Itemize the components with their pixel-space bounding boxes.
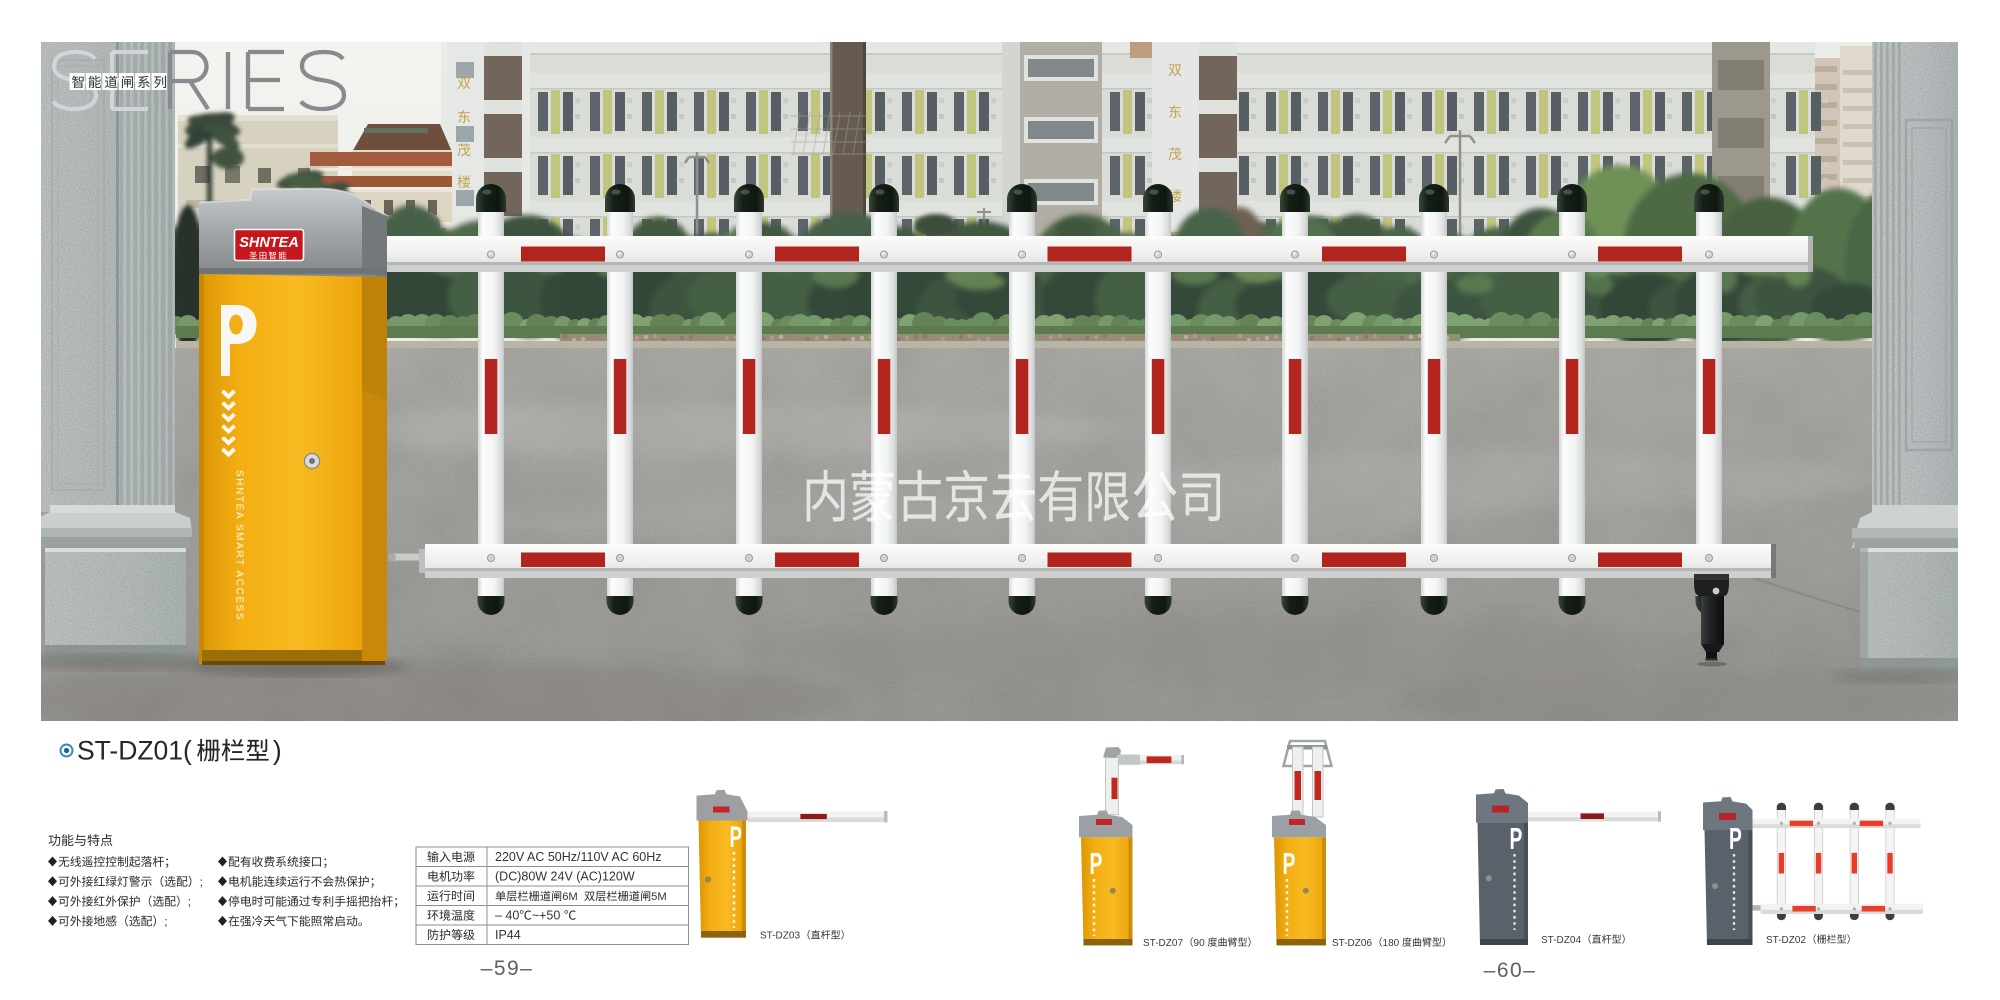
svg-text:;: ; [164,914,167,928]
svg-text:–60–: –60– [1484,959,1537,982]
svg-text:(DC)80W 24V (AC)120W: (DC)80W 24V (AC)120W [495,870,635,884]
svg-text:SHNTEA SMART ACCESS: SHNTEA SMART ACCESS [234,470,245,621]
svg-text:P: P [1510,823,1523,857]
svg-text:ST-DZ06: ST-DZ06 [1332,938,1372,949]
svg-text:ST-DZ07: ST-DZ07 [1143,938,1183,949]
svg-text:– 40: – 40 [495,909,519,923]
svg-text:90: 90 [1194,938,1206,949]
svg-text:;: ; [188,895,191,909]
svg-text:;: ; [200,875,203,889]
svg-text:): ) [273,736,282,766]
svg-text:P: P [730,821,742,855]
svg-text:~+50: ~+50 [532,909,561,923]
svg-text:180: 180 [1383,938,1400,949]
svg-text:P: P [1729,823,1742,857]
svg-text:–59–: –59– [481,957,534,980]
svg-text:IP44: IP44 [495,928,521,942]
svg-text:SHNTEA: SHNTEA [239,235,299,251]
svg-text:220V AC 50Hz/110V AC 60Hz: 220V AC 50Hz/110V AC 60Hz [495,850,662,864]
svg-text:P: P [1090,848,1103,882]
svg-text:5M: 5M [651,891,667,903]
svg-text:ST-DZ01(: ST-DZ01( [77,736,192,766]
svg-text:ST-DZ03: ST-DZ03 [760,931,800,942]
svg-text:ST-DZ02: ST-DZ02 [1766,935,1806,946]
svg-text:P: P [1283,848,1296,882]
svg-text:ST-DZ04: ST-DZ04 [1541,935,1581,946]
svg-text:6M: 6M [562,891,578,903]
